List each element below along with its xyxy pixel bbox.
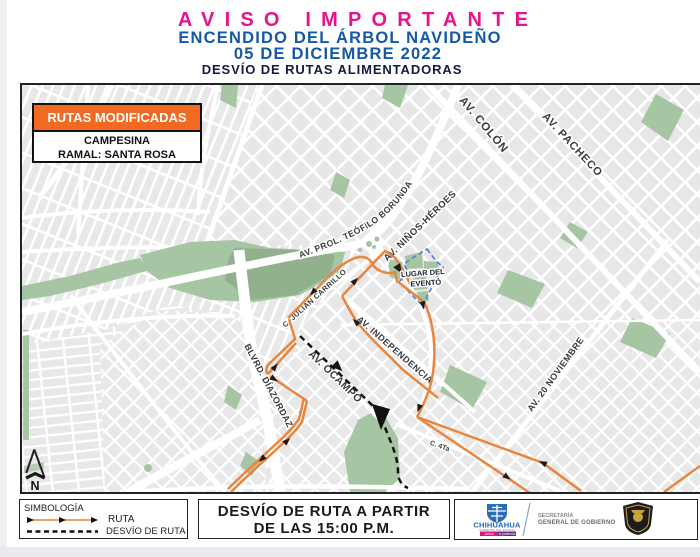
svg-text:lo podemos: lo podemos bbox=[499, 532, 516, 536]
svg-text:SECRETARÍA: SECRETARÍA bbox=[538, 511, 573, 519]
svg-text:N: N bbox=[30, 479, 39, 492]
svg-text:GENERAL DE GOBIERNO: GENERAL DE GOBIERNO bbox=[538, 520, 615, 526]
svg-text:Juntos: Juntos bbox=[484, 532, 494, 536]
